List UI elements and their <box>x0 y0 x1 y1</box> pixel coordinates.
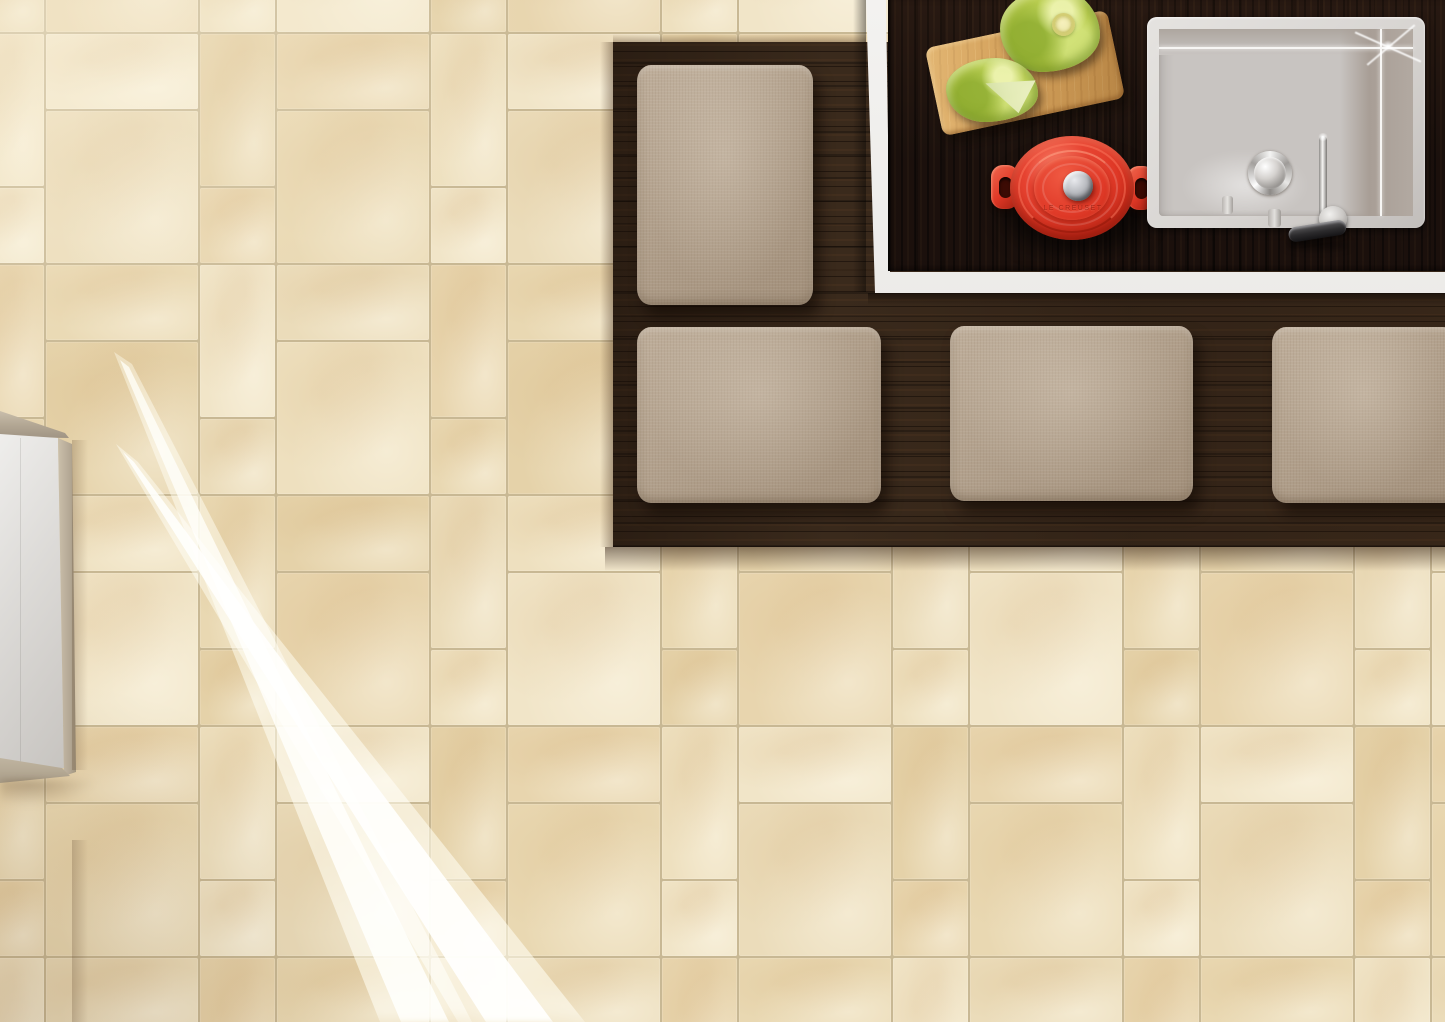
bench-shadow <box>613 34 866 42</box>
red-casserole-pot: LE CREUSET <box>991 133 1155 245</box>
sink-sparkle <box>1382 40 1394 52</box>
seat-cushion <box>637 327 881 503</box>
cabinet-body-panel <box>0 430 66 776</box>
island-band-shadow <box>868 293 1445 305</box>
sink-fitting-stub <box>1268 209 1281 227</box>
seat-cushion <box>950 326 1193 501</box>
seat-cushion <box>637 65 813 305</box>
lettuce-core <box>1052 13 1075 36</box>
lettuce-stem <box>980 69 1035 116</box>
lettuce-half <box>946 58 1038 122</box>
cabinet-cast-shadow <box>72 840 88 1022</box>
cabinet-cast-shadow <box>72 440 88 770</box>
sink-drain <box>1248 151 1292 195</box>
cabinet-panel-seam <box>20 438 21 768</box>
sink-drain-core <box>1254 157 1286 189</box>
island-edge-shadow <box>853 0 866 292</box>
bench-shadow <box>605 547 1445 571</box>
kitchen-top-view-photo: LE CREUSET <box>0 0 1445 1022</box>
pot-brand-embossing: LE CREUSET <box>1041 205 1105 215</box>
cabinet-floor-shadow <box>0 780 96 806</box>
faucet-highlight <box>1318 133 1328 141</box>
faucet-pipe <box>1319 136 1327 216</box>
sink-highlight <box>1180 150 1310 220</box>
pot-lid-knob <box>1063 171 1093 201</box>
seat-cushion <box>1272 327 1445 503</box>
sink-edge-highlight <box>1380 29 1382 216</box>
soap-dispenser-stub <box>1222 196 1233 214</box>
bench-shadow <box>600 42 613 547</box>
sink-edge-highlight <box>1159 47 1413 49</box>
